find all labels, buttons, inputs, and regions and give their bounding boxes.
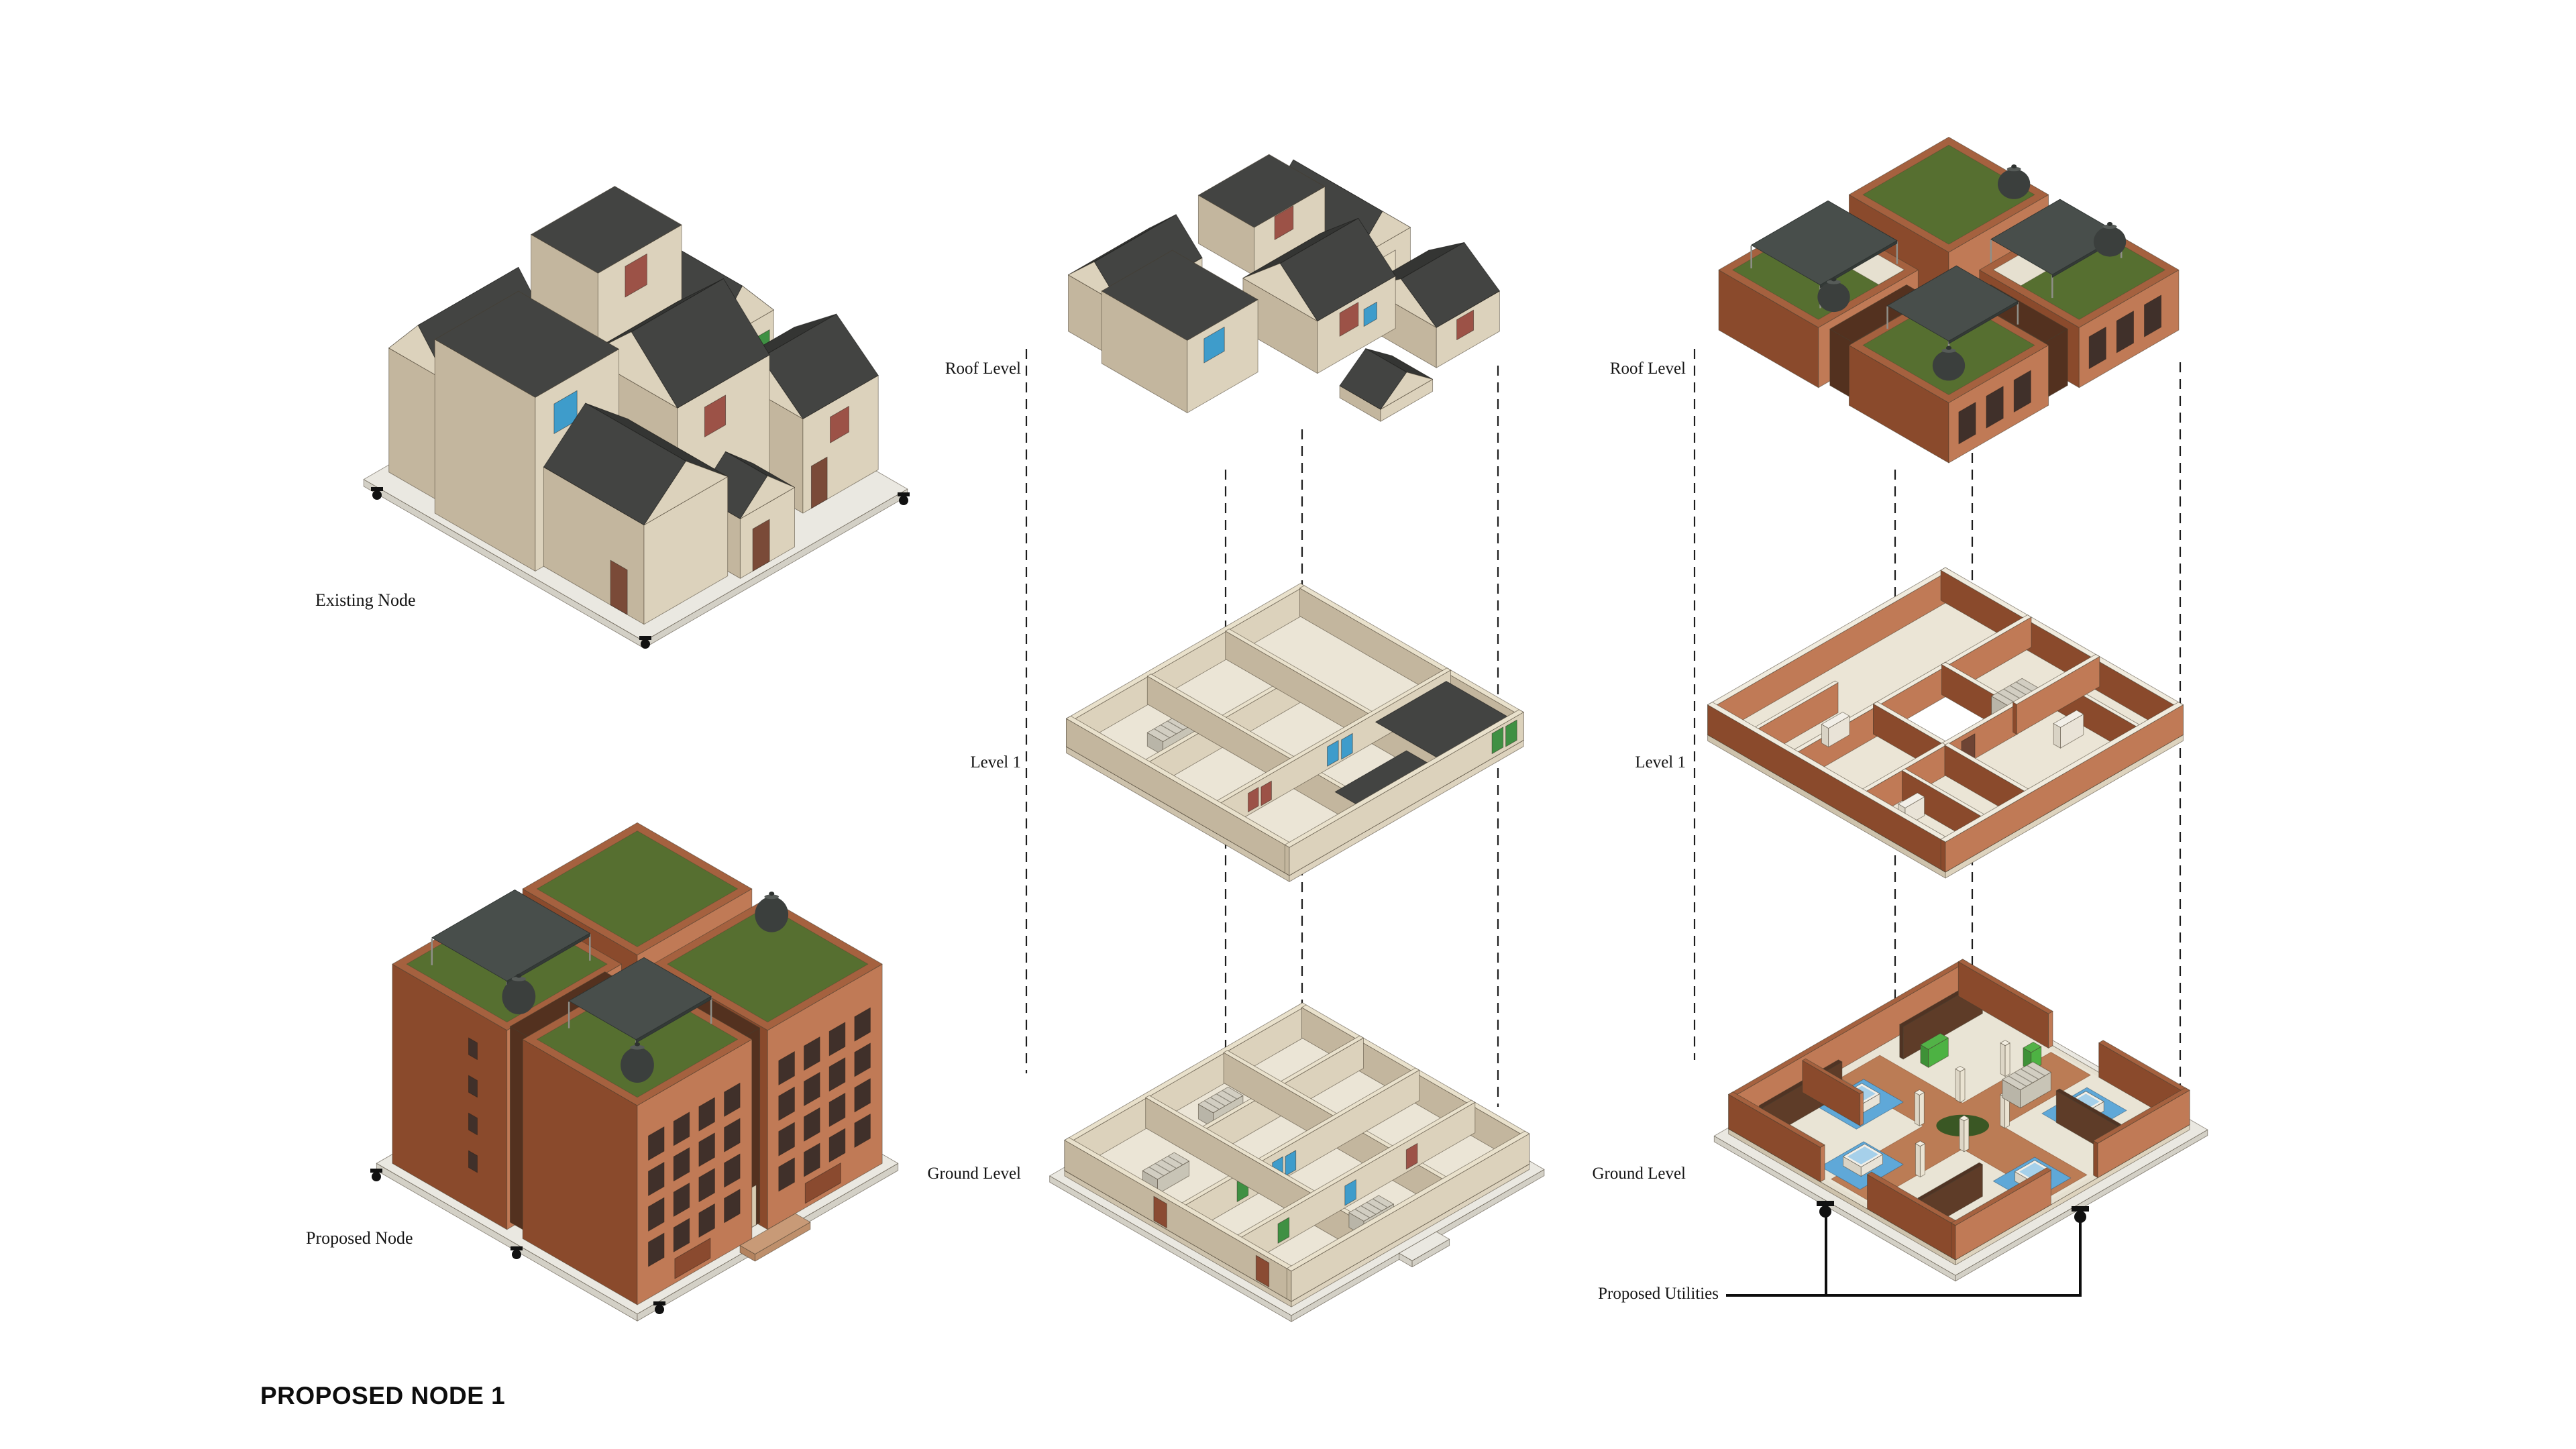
utility-wheel-icons	[370, 487, 2089, 1314]
drawing-sheet: { "title": "PROPOSED NODE 1", "columns":…	[0, 0, 2576, 1449]
sheet-title: PROPOSED NODE 1	[260, 1382, 505, 1410]
label-ground-level-existing: Ground Level	[867, 1165, 1021, 1183]
label-existing-node: Existing Node	[315, 591, 416, 610]
label-roof-level-proposed: Roof Level	[1532, 360, 1686, 378]
label-roof-level-existing: Roof Level	[867, 360, 1021, 378]
label-proposed-node: Proposed Node	[306, 1229, 413, 1248]
label-level1-existing: Level 1	[867, 753, 1021, 772]
label-level1-proposed: Level 1	[1532, 753, 1686, 772]
label-proposed-utilities: Proposed Utilities	[1551, 1285, 1719, 1303]
label-ground-level-proposed: Ground Level	[1532, 1165, 1686, 1183]
